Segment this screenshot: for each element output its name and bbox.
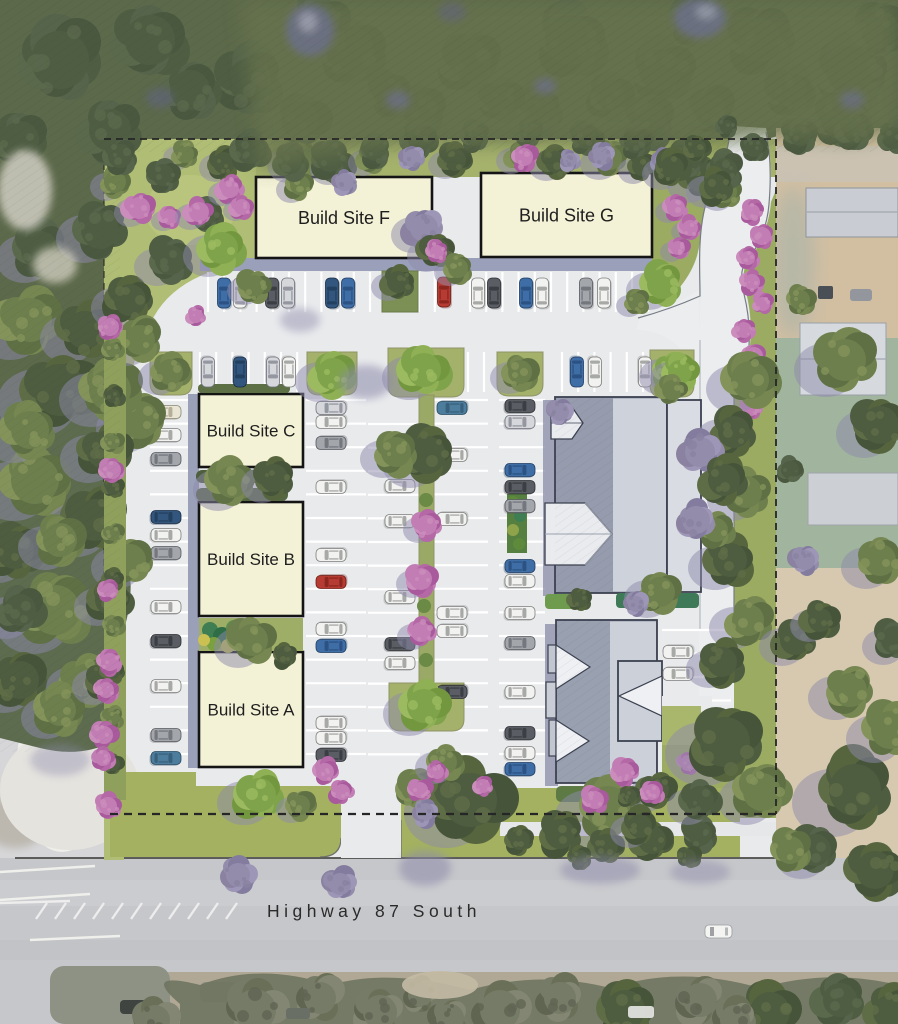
svg-text:Highway 87 South: Highway 87 South [267,901,481,921]
svg-text:Build Site B: Build Site B [207,550,295,569]
svg-text:Build Site G: Build Site G [519,205,614,225]
svg-text:Build Site A: Build Site A [208,700,296,719]
svg-text:Build Site C: Build Site C [207,421,296,440]
svg-text:Build Site F: Build Site F [298,208,390,228]
